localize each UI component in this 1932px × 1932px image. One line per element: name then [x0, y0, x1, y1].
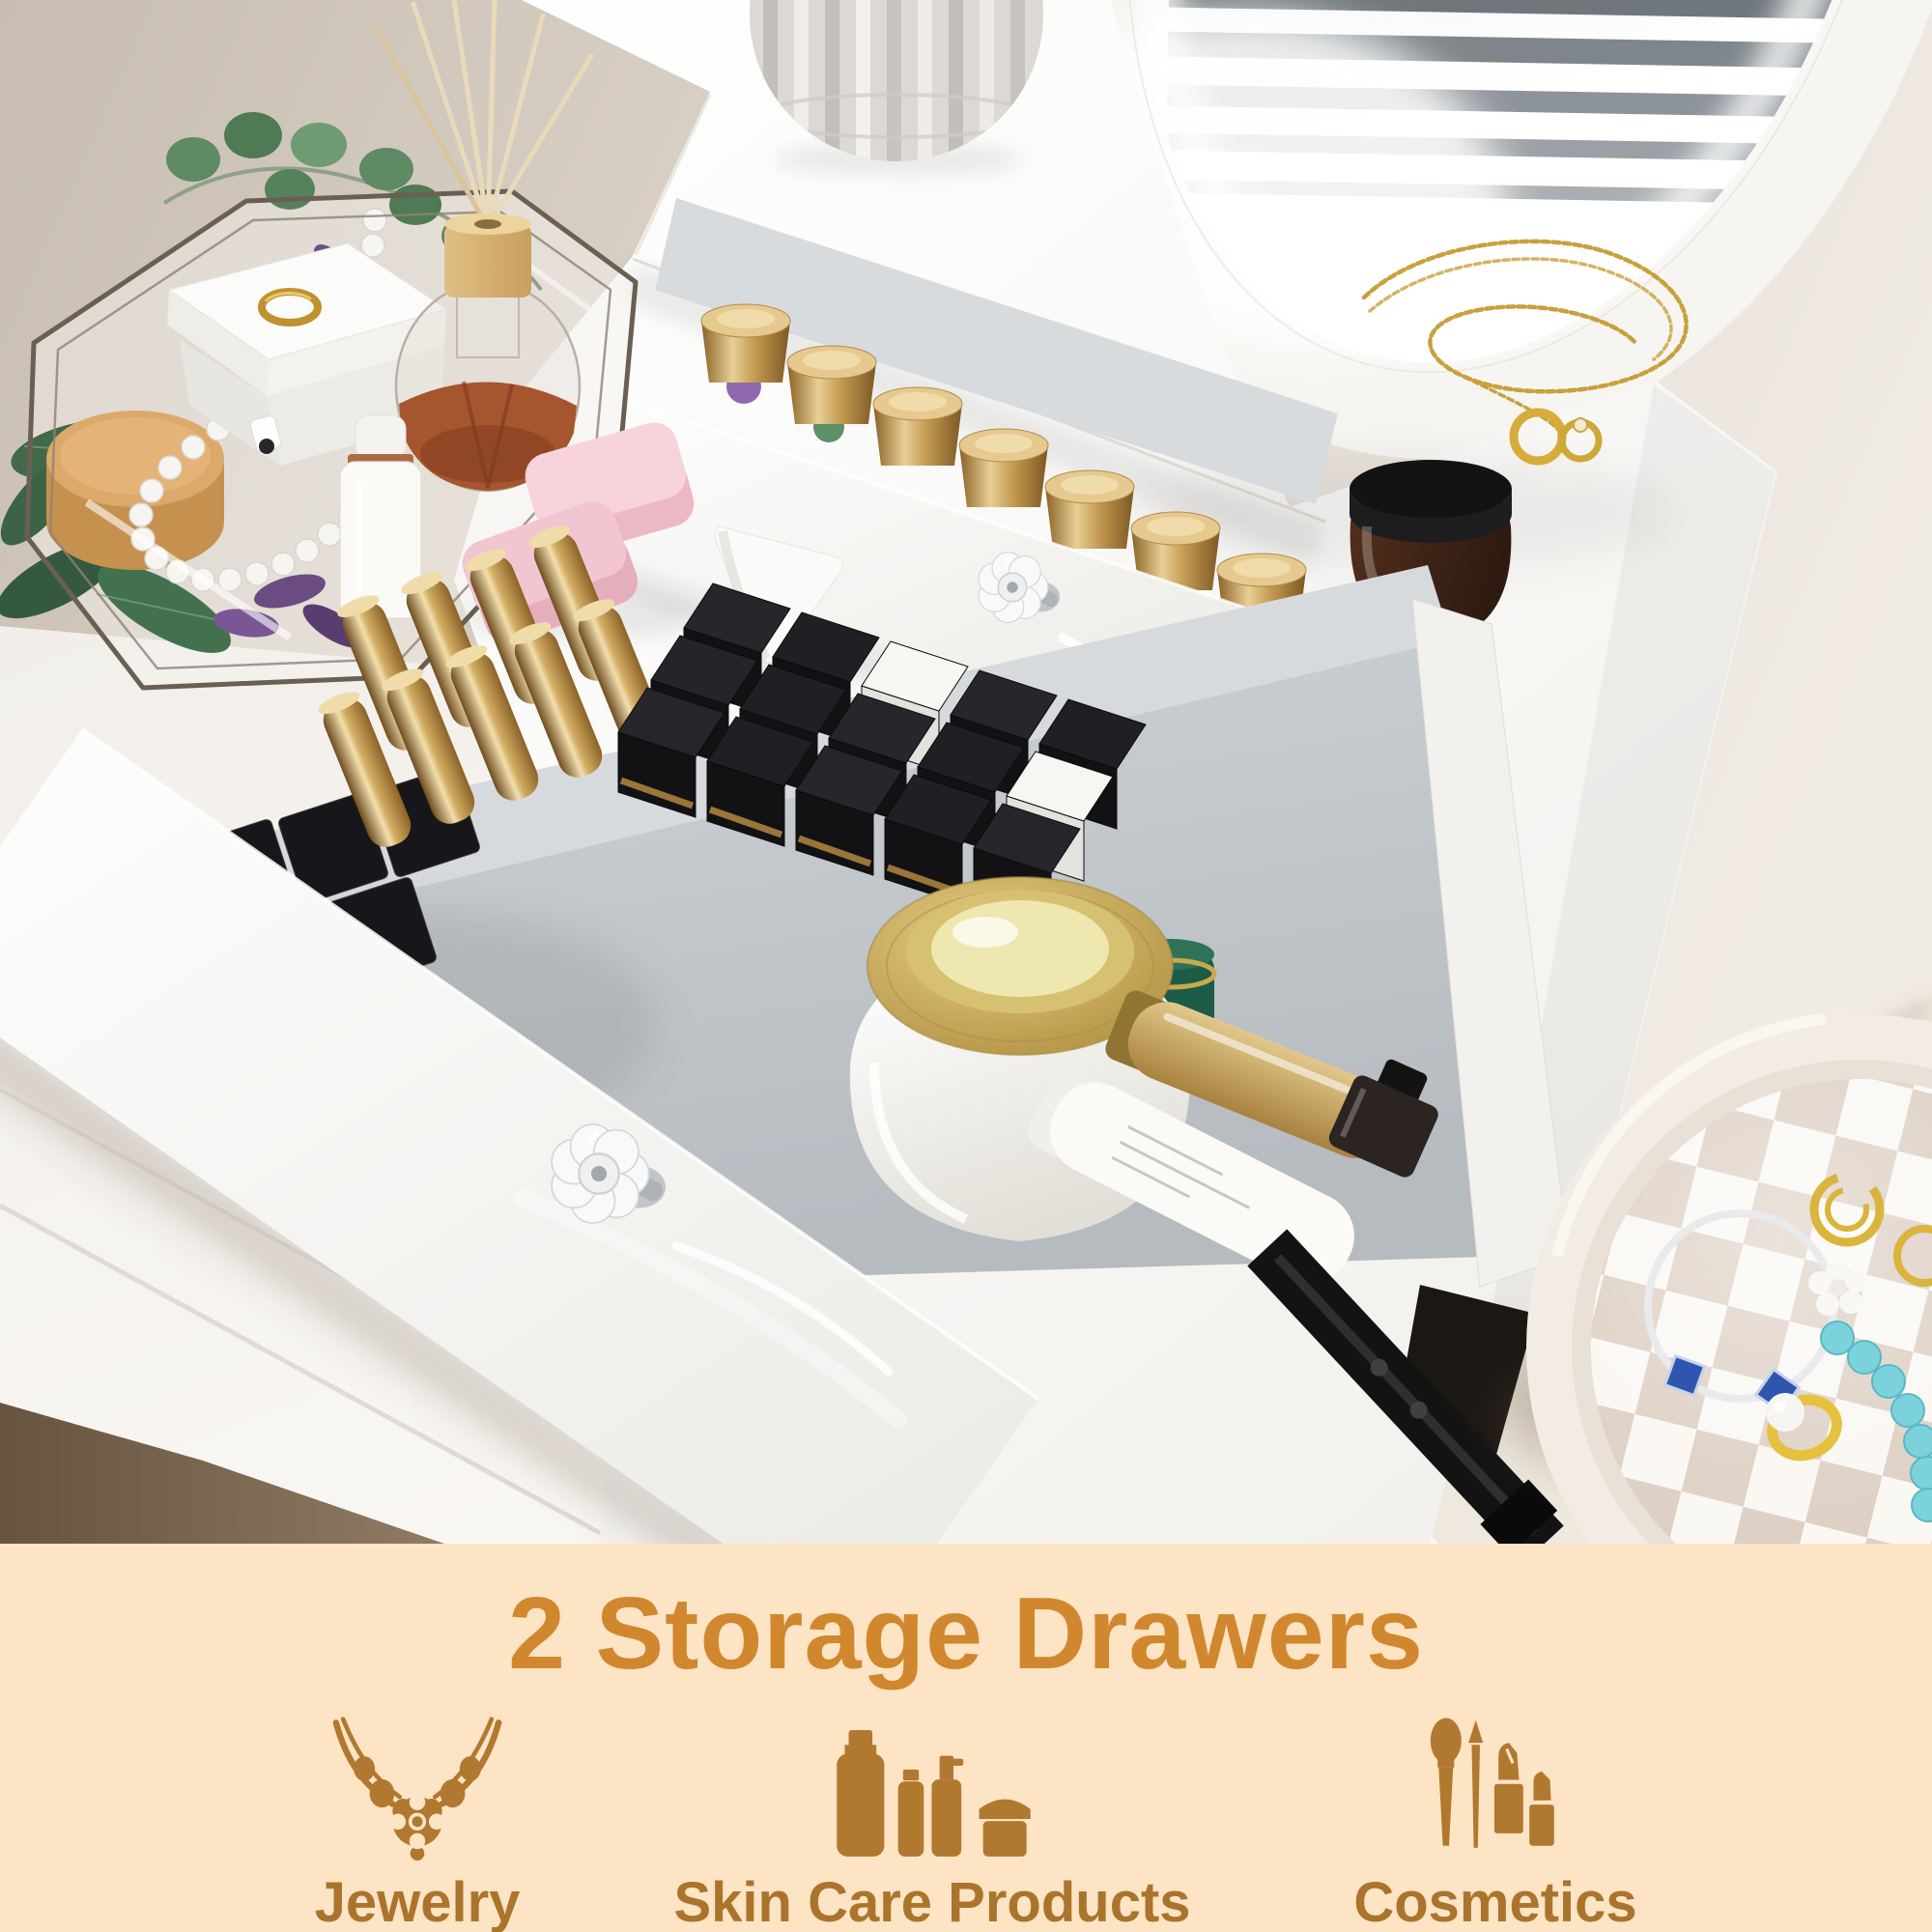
- skincare-bottles-icon: [829, 1716, 1037, 1861]
- banner-label-skincare: Skin Care Products: [673, 1870, 1190, 1932]
- info-banner: 2 Storage Drawers: [0, 1544, 1932, 1932]
- banner-label-cosmetics: Cosmetics: [1353, 1870, 1636, 1932]
- banner-label-jewelry: Jewelry: [315, 1870, 521, 1932]
- banner-item-skincare: Skin Care Products: [623, 1716, 1241, 1932]
- banner-item-cosmetics: Cosmetics: [1186, 1716, 1804, 1932]
- vanity-photo: [0, 0, 1932, 1544]
- cosmetics-brushes-lipstick-icon: [1418, 1716, 1573, 1861]
- banner-heading: 2 Storage Drawers: [0, 1582, 1932, 1685]
- product-image: 2 Storage Drawers: [0, 0, 1932, 1932]
- necklace-icon: [306, 1716, 528, 1861]
